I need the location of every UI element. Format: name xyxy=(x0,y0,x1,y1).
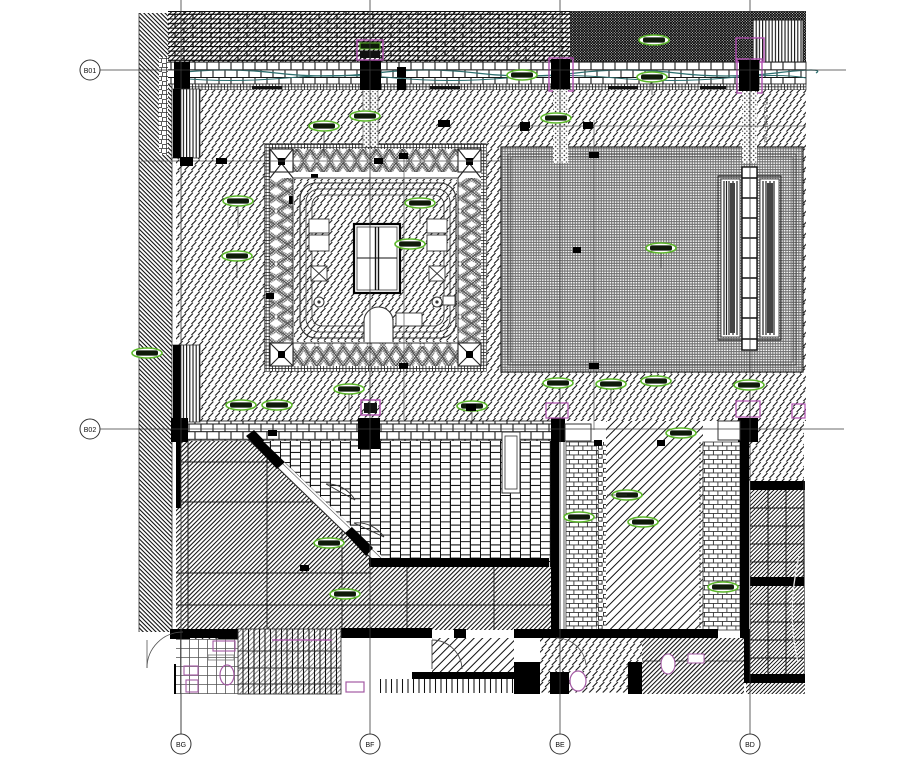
svg-text:BG: BG xyxy=(176,742,186,749)
svg-text:BF: BF xyxy=(366,742,375,749)
svg-text:BE: BE xyxy=(555,742,565,749)
svg-text:BD: BD xyxy=(745,742,755,749)
svg-text:B01: B01 xyxy=(84,68,97,75)
svg-text:B02: B02 xyxy=(84,427,97,434)
svg-text:FB-01 SHAFT №2: FB-01 SHAFT №2 xyxy=(762,98,768,143)
